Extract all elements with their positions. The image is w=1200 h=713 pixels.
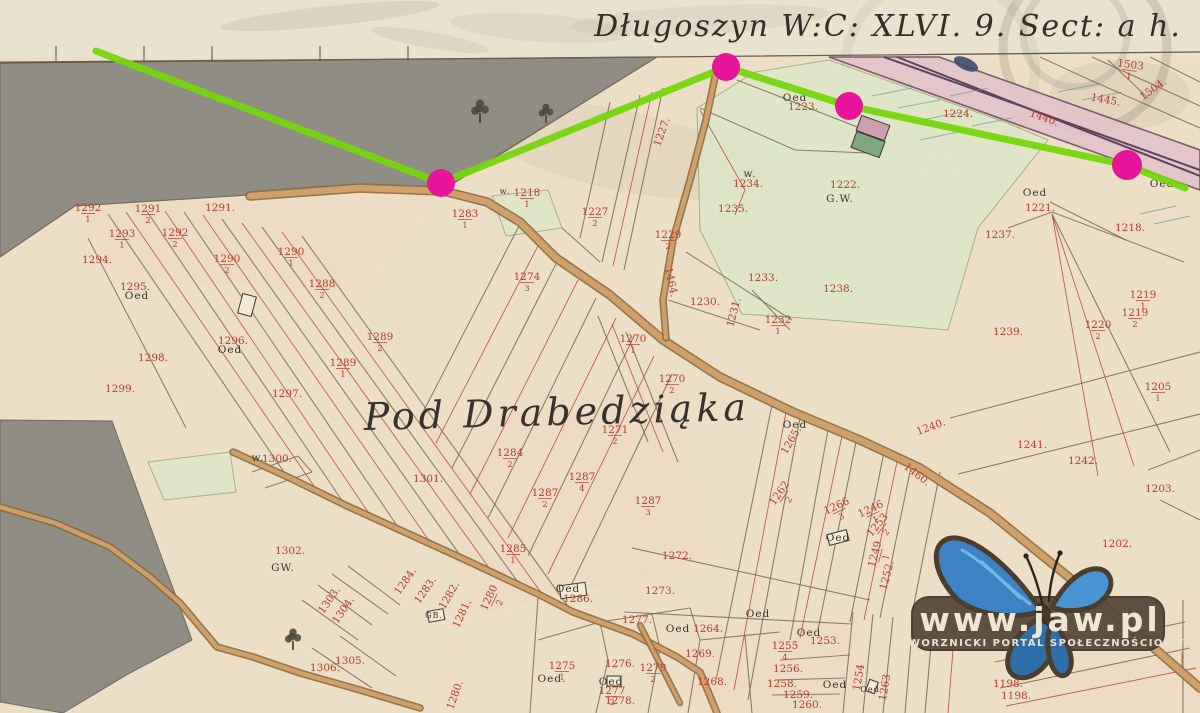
land-use-label: Oed (746, 608, 771, 620)
parcel-number-text: 1272. (662, 550, 692, 562)
parcel-number: 1202. (1102, 538, 1132, 550)
parcel-number-text: 1288 (309, 278, 336, 290)
parcel-number: 1264. (693, 623, 723, 635)
parcel-number-text: 1287 (635, 495, 662, 507)
parcel-number-denominator: 1 (119, 241, 124, 251)
land-use-label: Oed. (538, 673, 567, 685)
parcel-number-text: 1291. (205, 202, 235, 214)
parcel-number-text: 1297. (272, 388, 302, 400)
parcel-number-text: 1284 (497, 447, 524, 459)
parcel-number-text: 1218. (1115, 222, 1145, 234)
tree-crown (288, 633, 295, 640)
parcel-number-text: 1300. (262, 453, 292, 465)
parcel-number-denominator: 3 (524, 284, 529, 294)
parcel-number-text: 1229 (655, 229, 682, 241)
parcel-number-text: 1276. (605, 658, 635, 670)
parcel-number-denominator: 2 (224, 266, 229, 276)
watermark-subtitle: JAWORZNICKI PORTAL SPOŁECZNOŚCIOWY (894, 636, 1185, 649)
parcel-number-text: 1299. (105, 383, 135, 395)
parcel-number-text: 1238. (823, 283, 853, 295)
parcel-number-text: 1290 (214, 253, 241, 265)
parcel-number: 1269. (685, 648, 715, 660)
land-use-label: Oed (823, 679, 848, 691)
parcel-number-text: 1277. (622, 614, 652, 626)
parcel-number-text: 1290 (278, 246, 305, 258)
parcel-number: 1218. (1115, 222, 1145, 234)
cadastral-map-viewport: 12921129121291.12931129221294.1290212901… (0, 0, 1200, 713)
parcel-number-text: 1270 (659, 373, 686, 385)
parcel-number: 1256. (773, 663, 803, 675)
parcel-number-text: 1274 (514, 271, 541, 283)
parcel-number-text: 1283 (452, 208, 479, 220)
land-use-label: GW. (271, 562, 295, 574)
parcel-number-text: 1239. (993, 326, 1023, 338)
parcel-number: 1241. (1017, 439, 1047, 451)
parcel-number: 1301. (413, 473, 443, 485)
parcel-number-text: 1287 (569, 471, 596, 483)
butterfly-antenna-tip (1057, 550, 1062, 555)
parcel-number: 1224. (943, 108, 973, 120)
parcel-number-text: 1198. (1001, 690, 1031, 702)
parcel-number-denominator: 2 (650, 675, 655, 685)
parcel-number-text: 1220 (1085, 319, 1112, 331)
parcel-number: 1230. (690, 296, 720, 308)
parcel-number-denominator: 2 (319, 291, 324, 301)
land-use-label: Oed (860, 685, 879, 694)
parcel-number-text: 1293 (109, 228, 136, 240)
parcel-number-text: 1232 (765, 314, 792, 326)
tree-crown (475, 104, 483, 112)
parcel-number: 1277. (622, 614, 652, 626)
parcel-number-text: 1205 (1145, 381, 1172, 393)
parcel-number-text: 1294. (82, 254, 112, 266)
parcel-number-text: 1273. (645, 585, 675, 597)
parcel-number-text: 1222. (830, 179, 860, 191)
land-use-label: Oed (218, 344, 243, 356)
parcel-number-text: 1230. (690, 296, 720, 308)
parcel-number-text: 1235. (718, 203, 748, 215)
land-use-label: GB. (425, 611, 443, 620)
waypoint-dot (712, 53, 740, 81)
parcel-number-text: 1227 (582, 206, 609, 218)
parcel-number: 1242. (1068, 455, 1098, 467)
parcel-number-text: 1219 (1122, 307, 1149, 319)
land-use-label: w. (500, 187, 510, 196)
parcel-number: 1222. (830, 179, 860, 191)
parcel-number-denominator: 2 (542, 500, 547, 510)
parcel-number-text: 1275 (549, 660, 576, 672)
parcel-number-text: 1242. (1068, 455, 1098, 467)
parcel-number-denominator: 2 (507, 460, 512, 470)
parcel-number-denominator: 1 (630, 346, 635, 356)
parcel-number-text: 1292 (162, 227, 189, 239)
parcel-number-denominator: 1 (462, 221, 467, 231)
parcel-number-text: 1255 (772, 640, 799, 652)
butterfly-antenna-tip (1023, 553, 1028, 558)
parcel-number-denominator: 1 (288, 259, 293, 269)
parcel-number-denominator: 2 (592, 219, 597, 229)
parcel-number-denominator: 2 (1095, 332, 1100, 342)
parcel-number-text: 1221. (1025, 202, 1055, 214)
parcel-number-denominator: 1 (524, 200, 529, 210)
parcel-number-text: 1306. (310, 662, 340, 674)
parcel-number-denominator: 4 (782, 653, 787, 663)
parcel-number: 1291. (205, 202, 235, 214)
land-use-label: Oed (556, 583, 581, 595)
land-use-label: Oed (599, 676, 624, 688)
parcel-number: 1306. (310, 662, 340, 674)
parcel-number: 1299. (105, 383, 135, 395)
parcel-number: 1276. (605, 658, 635, 670)
parcel-number-text: 1279 (640, 662, 667, 674)
parcel-number-text: 1237. (985, 229, 1015, 241)
parcel-number: 1203. (1145, 483, 1175, 495)
watermark-url: www.jaw.pl (919, 600, 1160, 639)
cadastral-map-image: 12921129121291.12931129221294.1290212901… (0, 0, 1200, 713)
parcel-number-text: 1224. (943, 108, 973, 120)
land-use-label: G.W. (826, 193, 854, 205)
parcel-number: 1198. (1001, 690, 1031, 702)
parcel-number-denominator: 1 (510, 556, 515, 566)
land-use-label: Oed (826, 532, 851, 544)
tree-crown (542, 108, 549, 115)
waypoint-dot (835, 92, 863, 120)
parcel-number-text: 1268. (697, 676, 727, 688)
parcel-number-text: 1218 (514, 187, 541, 199)
parcel-number-text: 1270 (620, 333, 647, 345)
parcel-number-text: 1289 (367, 331, 394, 343)
parcel-number: 1221. (1025, 202, 1055, 214)
parcel-number-text: 1202. (1102, 538, 1132, 550)
parcel-number: 1272. (662, 550, 692, 562)
parcel-number-denominator: 2 (1132, 320, 1137, 330)
parcel-number: 1302. (275, 545, 305, 557)
parcel-number: 1238. (823, 283, 853, 295)
land-use-label: w. (743, 168, 756, 180)
land-use-label: Oed (783, 419, 808, 431)
parcel-number-text: 1289 (330, 357, 357, 369)
parcel-number-denominator: 1 (775, 327, 780, 337)
parcel-number-text: 1292 (75, 202, 102, 214)
parcel-number-denominator: 2 (612, 437, 617, 447)
parcel-number: 1237. (985, 229, 1015, 241)
parcel-number: 1294. (82, 254, 112, 266)
parcel-number-text: 1219 (1130, 289, 1157, 301)
parcel-number-text: 1241. (1017, 439, 1047, 451)
land-use-label: w. (251, 452, 264, 464)
land-use-label: Oed (125, 290, 150, 302)
land-use-label: Oed (1023, 187, 1048, 199)
parcel-number: 1260. (792, 699, 822, 711)
parcel-number: 1300. (262, 453, 292, 465)
parcel-number-text: 1269. (685, 648, 715, 660)
parcel-number-denominator: 1 (340, 370, 345, 380)
parcel-number-text: 1285 (500, 543, 527, 555)
parcel-number: 1239. (993, 326, 1023, 338)
parcel-number-denominator: 2 (172, 240, 177, 250)
parcel-number-text: 1302. (275, 545, 305, 557)
parcel-number-text: 1287 (532, 487, 559, 499)
parcel-number-text: 1298. (138, 352, 168, 364)
parcel-number: 1297. (272, 388, 302, 400)
land-use-label: Oed (797, 627, 822, 639)
parcel-number-text: 1301. (413, 473, 443, 485)
parcel-number-denominator: 2 (377, 344, 382, 354)
parcel-number-denominator: 2 (145, 216, 150, 226)
parcel-number-text: 1203. (1145, 483, 1175, 495)
map-sheet-title: Długoszyn W:C: XLVI. 9. Sect: a h. (593, 9, 1182, 44)
parcel-number-text: 1256. (773, 663, 803, 675)
parcel-number: 1268. (697, 676, 727, 688)
land-use-label: Oed (666, 623, 691, 635)
waypoint-dot (427, 169, 455, 197)
waypoint-dot (1112, 150, 1142, 180)
parcel-number-denominator: 1 (1155, 394, 1160, 404)
parcel-number: 1233. (748, 272, 778, 284)
parcel-number-denominator: 4 (579, 484, 584, 494)
parcel-number-text: 1291 (135, 203, 162, 215)
parcel-number-text: 1233. (748, 272, 778, 284)
parcel-number-denominator: 3 (645, 508, 650, 518)
parcel-number-denominator: 2 (665, 242, 670, 252)
parcel-number-denominator: 1 (85, 215, 90, 225)
parcel-number: 1278. (605, 695, 635, 707)
parcel-number: 1235. (718, 203, 748, 215)
parcel-number: 1298. (138, 352, 168, 364)
parcel-number-text: 1264. (693, 623, 723, 635)
parcel-number-text: 1260. (792, 699, 822, 711)
parcel-number-text: 1278. (605, 695, 635, 707)
parcel-number: 1273. (645, 585, 675, 597)
